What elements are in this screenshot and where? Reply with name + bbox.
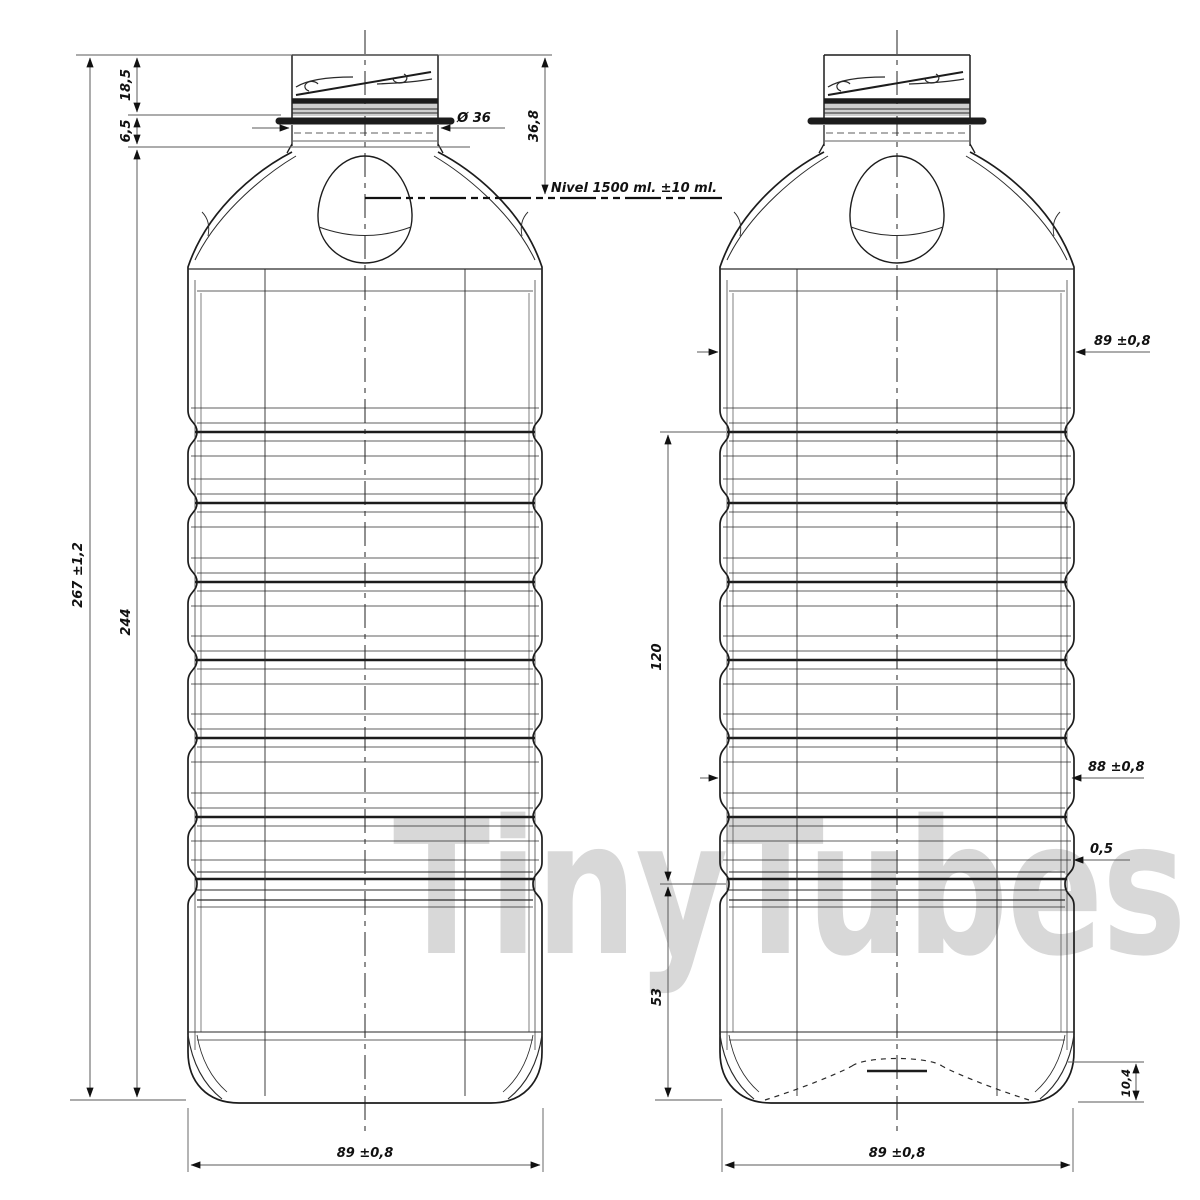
- dim-base-pushup-height: 10,4: [1119, 1069, 1133, 1097]
- dim-neck-finish-height: 18,5: [119, 69, 134, 101]
- drawing-sheet: TinyTubes 267 ±1,2 1: [0, 0, 1200, 1200]
- dim-ribbed-section-height: 120: [650, 643, 665, 670]
- dim-neck-diameter: Ø 36: [456, 111, 491, 126]
- sheet-background: [0, 0, 1200, 1200]
- dim-rib-waist-width: 88 ±0,8: [1088, 760, 1145, 775]
- dim-front-base-width: 89 ±0,8: [337, 1146, 394, 1161]
- fill-level-note: Nivel 1500 ml. ±10 ml.: [551, 181, 717, 196]
- dim-body-height: 244: [119, 608, 134, 635]
- dim-side-base-width: 89 ±0,8: [869, 1146, 926, 1161]
- technical-drawing-canvas: TinyTubes 267 ±1,2 1: [0, 0, 1200, 1200]
- dim-support-ring-offset: 6,5: [119, 119, 134, 142]
- dim-body-width: 89 ±0,8: [1094, 334, 1151, 349]
- dim-lower-section-height: 53: [650, 988, 665, 1006]
- dim-overall-height: 267 ±1,2: [71, 542, 86, 608]
- dim-fill-level-depth: 36,8: [527, 110, 542, 142]
- dim-rib-step-depth: 0,5: [1090, 842, 1113, 857]
